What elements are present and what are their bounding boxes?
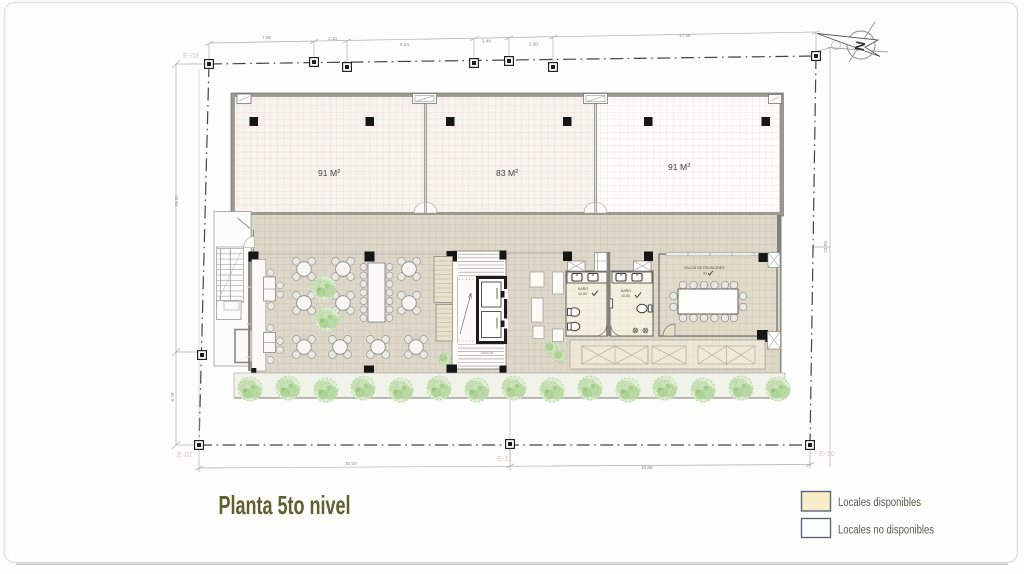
svg-text:19.86: 19.86 [641,465,653,470]
svg-text:19.32: 19.32 [174,195,179,207]
svg-text:SALON DE REUNIONES: SALON DE REUNIONES [684,266,725,270]
svg-text:BAÑO: BAÑO [578,286,588,291]
svg-text:E-03: E-03 [183,51,199,60]
svg-text:5.78: 5.78 [170,392,175,401]
svg-text:E-11: E-11 [497,454,512,463]
svg-text:8.24: 8.24 [400,42,409,47]
svg-text:BAÑO: BAÑO [621,288,631,293]
svg-text:10.50: 10.50 [578,292,587,296]
svg-text:91 M2: 91 M2 [318,168,340,178]
svg-text:23.58: 23.58 [823,241,828,253]
svg-text:7.06: 7.06 [262,35,271,40]
svg-text:Planta 5to nivel: Planta 5to nivel [219,490,351,520]
svg-text:41: 41 [703,272,707,276]
svg-text:10.50: 10.50 [621,294,630,298]
svg-text:SALIDA: SALIDA [481,351,494,355]
svg-text:2.44: 2.44 [482,39,491,44]
svg-text:17.36: 17.36 [679,33,691,38]
svg-text:E-01: E-01 [177,450,193,459]
svg-text:20.50: 20.50 [345,461,357,466]
svg-text:2.80: 2.80 [529,42,538,47]
svg-text:E-10: E-10 [819,449,835,458]
svg-text:Locales disponibles: Locales disponibles [838,497,921,509]
svg-text:91 M2: 91 M2 [668,162,690,172]
svg-text:2.10: 2.10 [328,36,337,41]
svg-text:83 M2: 83 M2 [496,168,518,178]
svg-text:Locales no disponibles: Locales no disponibles [838,525,934,537]
